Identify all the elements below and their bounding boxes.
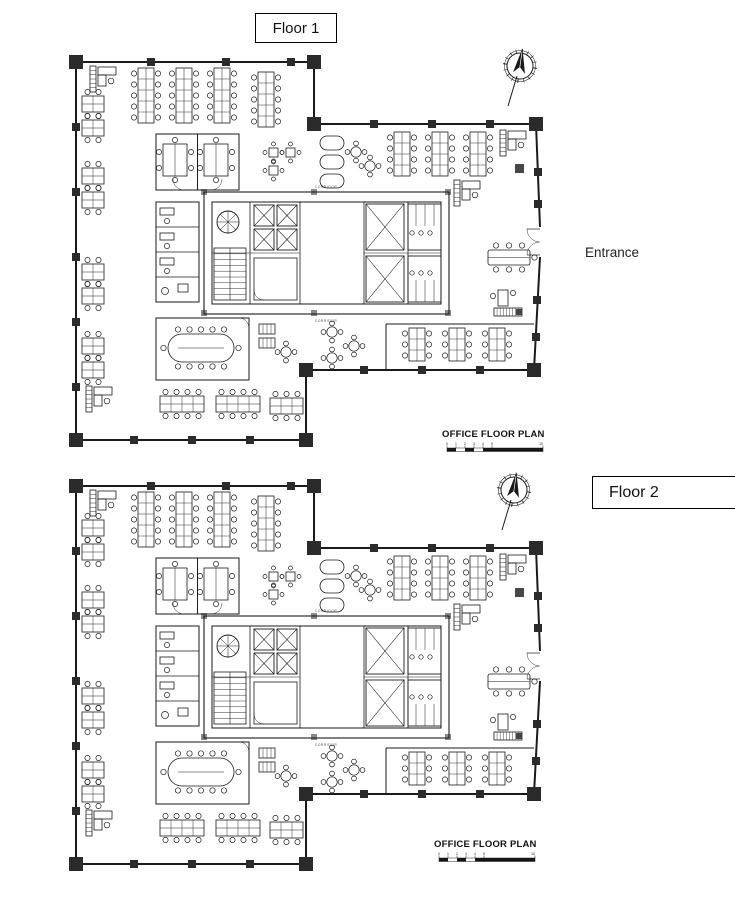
cafe-table	[275, 341, 297, 363]
desk-cluster	[82, 281, 104, 310]
desk-cluster	[402, 752, 431, 785]
pantry-table	[280, 142, 301, 163]
desk-cluster	[425, 132, 454, 176]
svg-text:0: 0	[438, 852, 440, 856]
cafe-table	[343, 759, 365, 781]
meeting-table	[197, 561, 234, 606]
desk-cluster	[82, 355, 104, 384]
meeting-rooms	[156, 558, 239, 614]
cabinet	[259, 762, 275, 772]
manager-desk	[90, 490, 116, 516]
meeting-table	[156, 137, 193, 182]
desk-cluster	[463, 132, 492, 176]
north-arrow-compass-icon	[494, 470, 536, 534]
floor1-plan: CORRIDORCORRIDOR	[64, 52, 558, 452]
desk-cluster	[442, 752, 471, 785]
floor1-label-box: Floor 1	[255, 13, 337, 43]
printer	[515, 164, 524, 173]
svg-text:5: 5	[491, 442, 493, 446]
desk-cluster	[207, 68, 236, 123]
manager-desk	[86, 810, 112, 836]
floor2-plan: CORRIDORCORRIDOR	[64, 476, 558, 876]
svg-text:CORRIDOR: CORRIDOR	[315, 609, 338, 613]
cafe-table	[321, 321, 343, 343]
booth-sofa	[320, 136, 344, 150]
desk-cluster	[160, 813, 204, 842]
entrance-label: Entrance	[585, 245, 639, 260]
cafe-table	[359, 155, 381, 177]
manager-desk	[500, 130, 526, 156]
svg-text:5: 5	[483, 852, 485, 856]
floor2-scale-bar: 01234510	[437, 851, 539, 865]
compass-drawing	[501, 46, 540, 106]
desk-cluster	[402, 328, 431, 361]
svg-text:10: 10	[539, 442, 543, 446]
desk-cluster	[82, 705, 104, 734]
booth-sofa	[320, 579, 344, 593]
svg-text:1: 1	[447, 852, 449, 856]
cabinet	[259, 748, 275, 758]
svg-text:0: 0	[446, 442, 448, 446]
compass-drawing	[495, 470, 534, 530]
desk-cluster	[270, 815, 303, 844]
floor1-label: Floor 1	[273, 20, 320, 37]
desk-cluster	[207, 492, 236, 547]
desk-cluster	[270, 391, 303, 420]
floor2-plan-title: OFFICE FLOOR PLAN	[434, 839, 534, 850]
pantry-table	[280, 566, 301, 587]
desk-cluster	[131, 68, 160, 123]
cafe-table	[321, 347, 343, 369]
manager-desk	[86, 386, 112, 412]
desk-cluster	[425, 556, 454, 600]
cafe-table	[321, 771, 343, 793]
floor2-label-box: Floor 2	[592, 476, 735, 509]
svg-text:10: 10	[531, 852, 535, 856]
cabinet	[259, 324, 275, 334]
staircase	[214, 248, 246, 300]
desk-cluster	[82, 185, 104, 214]
desk-cluster	[251, 496, 280, 551]
phone-rooms	[156, 626, 199, 726]
corridor-labels: CORRIDORCORRIDOR	[315, 609, 338, 747]
manager-desk	[454, 604, 480, 630]
manager-desk	[90, 66, 116, 92]
floor1-plan-title: OFFICE FLOOR PLAN	[442, 429, 542, 440]
conference-table	[161, 327, 241, 369]
corridor-labels: CORRIDORCORRIDOR	[315, 185, 338, 323]
phone-rooms	[156, 202, 199, 302]
booth-sofa	[320, 155, 344, 169]
scale-bar-drawing: 01234510	[446, 442, 543, 452]
cafe-table	[345, 141, 367, 163]
reception-desk	[490, 290, 522, 316]
desk-cluster	[82, 537, 104, 566]
svg-text:4: 4	[474, 852, 476, 856]
desk-cluster	[463, 556, 492, 600]
desk-cluster	[82, 779, 104, 808]
floor-plan-drawing: CORRIDORCORRIDOR	[69, 479, 543, 871]
cafe-table	[345, 565, 367, 587]
desk-cluster	[160, 389, 204, 418]
cabinet	[259, 338, 275, 348]
svg-text:4: 4	[482, 442, 484, 446]
north-arrow-compass-icon	[500, 46, 542, 110]
meeting-table	[197, 137, 234, 182]
spiral-staircase	[217, 635, 239, 657]
cafe-table	[275, 765, 297, 787]
desk-cluster	[251, 72, 280, 127]
meeting-table	[156, 561, 193, 606]
manager-desk	[454, 180, 480, 206]
cafe-table	[321, 745, 343, 767]
desk-cluster	[482, 328, 511, 361]
desk-cluster	[169, 492, 198, 547]
floor-plan-drawing: CORRIDORCORRIDOR	[69, 55, 543, 447]
spiral-staircase	[217, 211, 239, 233]
desk-cluster	[387, 132, 416, 176]
cafe-table	[359, 579, 381, 601]
reception-desk	[490, 714, 522, 740]
desk-cluster	[216, 813, 260, 842]
conference-table	[161, 751, 241, 793]
booth-sofa	[320, 560, 344, 574]
printer	[515, 588, 524, 597]
svg-text:1: 1	[455, 442, 457, 446]
desk-cluster	[169, 68, 198, 123]
desk-cluster	[216, 389, 260, 418]
floor2-label: Floor 2	[609, 484, 659, 502]
svg-text:3: 3	[473, 442, 475, 446]
manager-desk	[500, 554, 526, 580]
desk-cluster	[442, 328, 471, 361]
meeting-rooms	[156, 134, 239, 190]
building-core: CORRIDORCORRIDOR	[204, 609, 449, 747]
desk-cluster	[131, 492, 160, 547]
desk-cluster	[387, 556, 416, 600]
svg-text:2: 2	[456, 852, 458, 856]
svg-text:2: 2	[464, 442, 466, 446]
building-core: CORRIDORCORRIDOR	[204, 185, 449, 323]
cafe-table	[343, 335, 365, 357]
desk-cluster	[82, 113, 104, 142]
floor1-scale-bar: 01234510	[445, 441, 547, 455]
desk-cluster	[82, 609, 104, 638]
desk-cluster	[482, 752, 511, 785]
document-page: Floor 1 CORRIDORCORRIDOR Entrance OFFICE…	[0, 0, 735, 897]
svg-text:3: 3	[465, 852, 467, 856]
staircase	[214, 672, 246, 724]
scale-bar-drawing: 01234510	[438, 852, 535, 862]
